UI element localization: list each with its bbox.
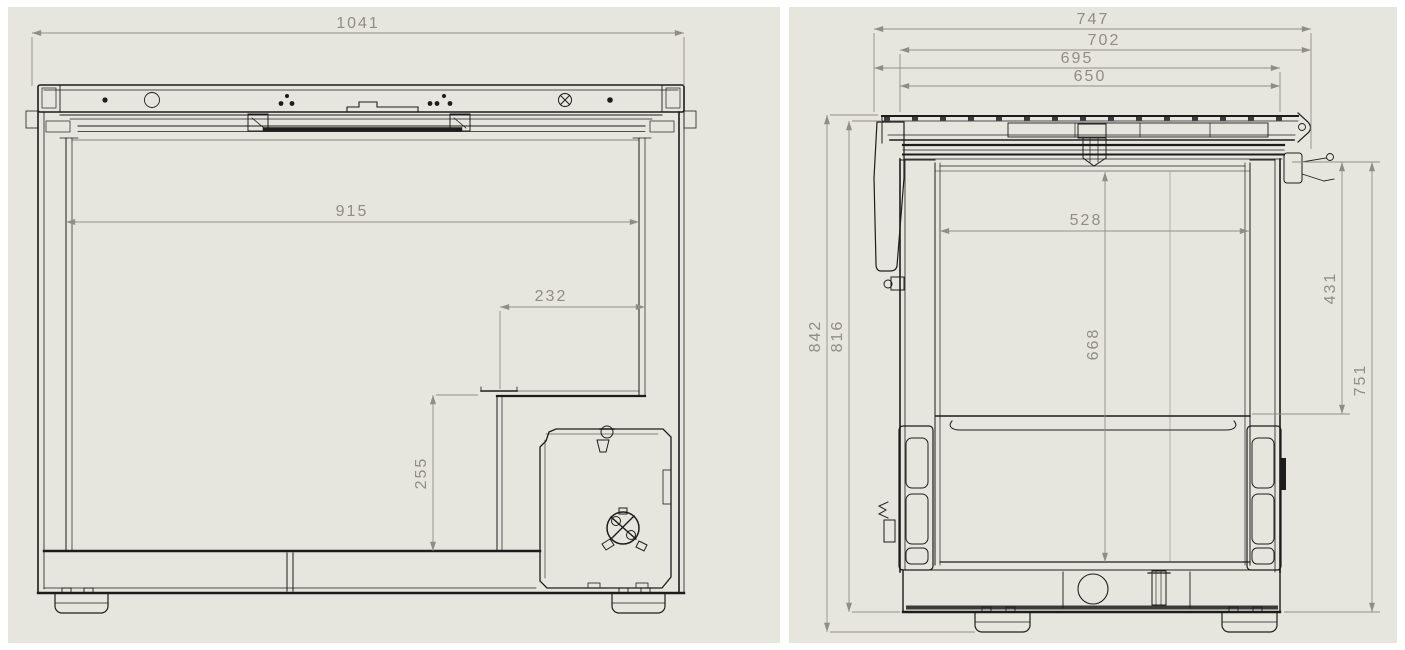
dim-body-depth-value: 650 <box>1074 68 1107 85</box>
technical-drawing-page: 1041 915 232 255 <box>0 0 1405 650</box>
dim-lid-depth-value: 702 <box>1088 32 1121 49</box>
dim-overall-depth-value: 747 <box>1077 11 1110 28</box>
dim-interior-width-value: 915 <box>336 203 369 220</box>
dim-step-height-value: 255 <box>413 457 430 490</box>
dim-overall-height-value: 842 <box>807 320 824 353</box>
lid-hole <box>102 97 107 102</box>
dim-interior-height-value: 668 <box>1085 328 1102 361</box>
dim-body-height-value: 816 <box>829 320 846 353</box>
dim-basket-height-value: 431 <box>1322 272 1339 305</box>
side-view-panel <box>789 7 1397 643</box>
drawing-svg: 1041 915 232 255 <box>0 0 1405 650</box>
dim-hinge-depth-value: 695 <box>1061 50 1094 67</box>
dim-overall-width-value: 1041 <box>336 15 380 32</box>
front-view-panel <box>8 7 780 643</box>
dim-step-width-value: 232 <box>535 288 568 305</box>
dim-interior-depth-value: 528 <box>1070 212 1103 229</box>
dim-rim-height-value: 751 <box>1352 364 1369 397</box>
